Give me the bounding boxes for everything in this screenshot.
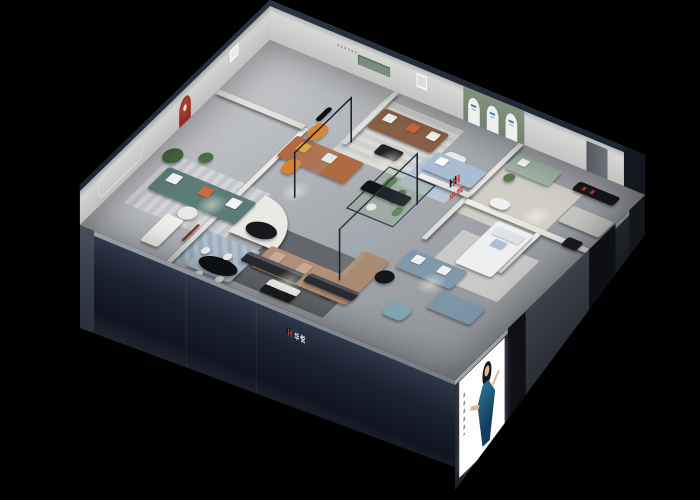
blue-logo-mark [509,124,513,127]
arched-niche [487,104,499,135]
blue-logo-mark [472,108,476,111]
white-shelf-unit [140,213,185,247]
panel-seam [256,303,257,403]
partition-wall [215,89,306,129]
picture-frame [230,43,238,63]
blue-logo-mark [490,116,494,119]
green-niche [358,54,390,77]
showroom-render: HH 华悦 HH 华悦 [0,0,700,500]
red-decor-items [589,190,595,194]
niche-lamp [183,103,186,112]
poster-vertical-text [463,392,465,436]
teal-ottoman [380,300,415,322]
corner-pillar [629,195,645,320]
panel-seam [185,274,186,374]
blue-grey-loveseat [426,291,487,326]
brand-logo-icon: HH [286,327,292,339]
storefront-fascia-sign: HH 华悦 [286,324,306,348]
dark-wall-segment [508,311,526,438]
picture-frame [417,73,428,91]
poster-model-arm [492,369,500,386]
fascia-sign-text: 华悦 [294,330,306,346]
corner-pillar [624,146,645,195]
corner-pillar [79,225,94,343]
potted-plant [195,151,216,165]
red-decor-items [581,187,587,191]
arched-niche [468,96,480,127]
arched-niche [506,111,518,142]
wall-text [337,44,356,54]
